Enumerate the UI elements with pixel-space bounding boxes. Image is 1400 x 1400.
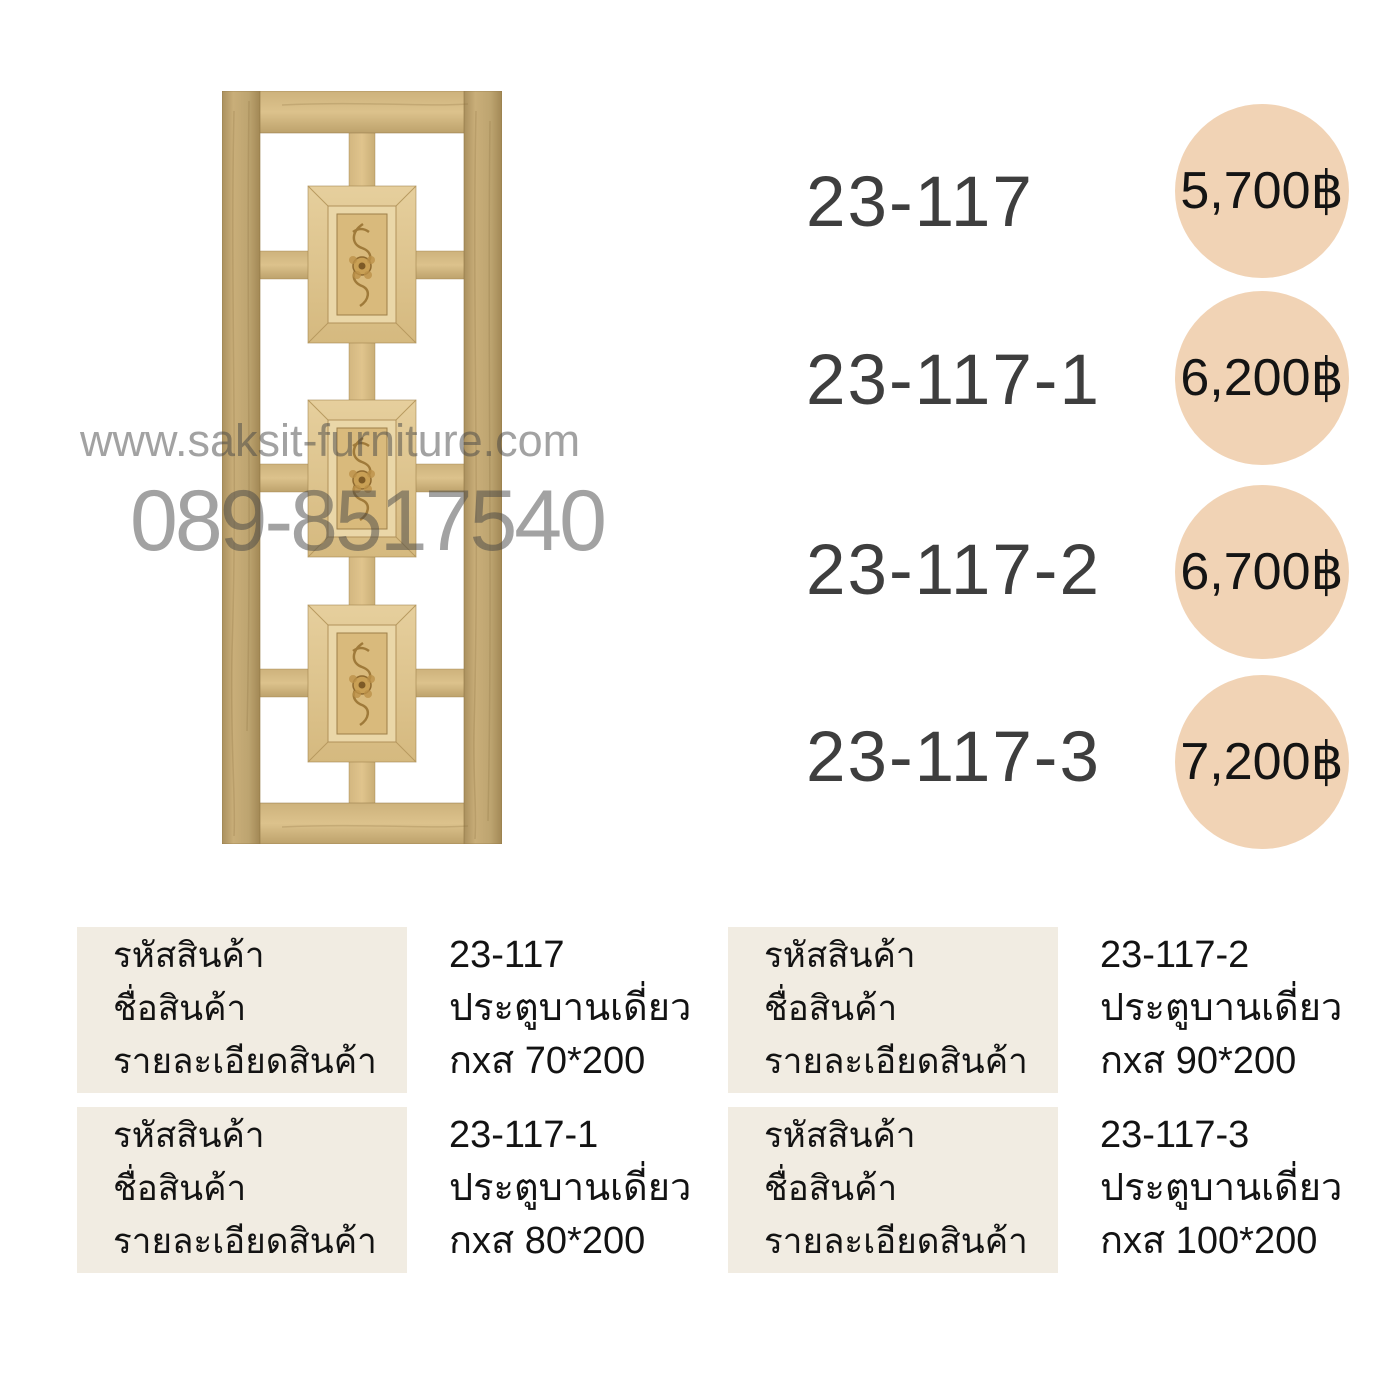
- spec-label-name: ชื่อสินค้า: [764, 982, 1028, 1035]
- spec-values: 23-117-2 ประตูบานเดี่ยว กxส 90*200: [1100, 929, 1342, 1088]
- spec-value-code: 23-117: [449, 929, 691, 982]
- product-code-23-117-3: 23-117-3: [806, 723, 1101, 793]
- spec-values: 23-117-1 ประตูบานเดี่ยว กxส 80*200: [449, 1109, 691, 1268]
- price-text: 7,200฿: [1180, 732, 1343, 792]
- spec-label-name: ชื่อสินค้า: [764, 1162, 1028, 1215]
- product-code-23-117-1: 23-117-1: [806, 346, 1101, 416]
- spec-value-name: ประตูบานเดี่ยว: [449, 982, 691, 1035]
- spec-value-detail: กxส 80*200: [449, 1215, 691, 1268]
- spec-label-name: ชื่อสินค้า: [113, 982, 377, 1035]
- price-text: 5,700฿: [1180, 161, 1343, 221]
- spec-label-detail: รายละเอียดสินค้า: [113, 1035, 377, 1088]
- spec-value-code: 23-117-2: [1100, 929, 1342, 982]
- watermark-website: www.saksit-furniture.com: [80, 418, 580, 463]
- spec-label-detail: รายละเอียดสินค้า: [764, 1215, 1028, 1268]
- spec-label-detail: รายละเอียดสินค้า: [113, 1215, 377, 1268]
- spec-label-code: รหัสสินค้า: [764, 1109, 1028, 1162]
- spec-values: 23-117 ประตูบานเดี่ยว กxส 70*200: [449, 929, 691, 1088]
- spec-value-name: ประตูบานเดี่ยว: [449, 1162, 691, 1215]
- product-code-23-117: 23-117: [806, 168, 1034, 238]
- spec-value-detail: กxส 90*200: [1100, 1035, 1342, 1088]
- spec-value-code: 23-117-1: [449, 1109, 691, 1162]
- product-code-23-117-2: 23-117-2: [806, 536, 1101, 606]
- spec-label-code: รหัสสินค้า: [113, 1109, 377, 1162]
- spec-labels: รหัสสินค้า ชื่อสินค้า รายละเอียดสินค้า: [113, 1109, 377, 1268]
- price-badge: 7,200฿: [1175, 675, 1349, 849]
- spec-label-name: ชื่อสินค้า: [113, 1162, 377, 1215]
- spec-value-detail: กxส 100*200: [1100, 1215, 1342, 1268]
- price-text: 6,700฿: [1180, 542, 1343, 602]
- spec-labels: รหัสสินค้า ชื่อสินค้า รายละเอียดสินค้า: [764, 1109, 1028, 1268]
- spec-labels: รหัสสินค้า ชื่อสินค้า รายละเอียดสินค้า: [113, 929, 377, 1088]
- spec-labels: รหัสสินค้า ชื่อสินค้า รายละเอียดสินค้า: [764, 929, 1028, 1088]
- price-badge: 5,700฿: [1175, 104, 1349, 278]
- spec-block-23-117-1: รหัสสินค้า ชื่อสินค้า รายละเอียดสินค้า 2…: [77, 1107, 717, 1277]
- carved-lattice-door-image: [222, 91, 502, 844]
- price-badge: 6,700฿: [1175, 485, 1349, 659]
- spec-value-code: 23-117-3: [1100, 1109, 1342, 1162]
- price-badge: 6,200฿: [1175, 291, 1349, 465]
- spec-values: 23-117-3 ประตูบานเดี่ยว กxส 100*200: [1100, 1109, 1342, 1268]
- catalog-page: www.saksit-furniture.com 089-8517540 23-…: [0, 0, 1400, 1400]
- spec-label-code: รหัสสินค้า: [764, 929, 1028, 982]
- spec-block-23-117-3: รหัสสินค้า ชื่อสินค้า รายละเอียดสินค้า 2…: [728, 1107, 1368, 1277]
- spec-block-23-117-2: รหัสสินค้า ชื่อสินค้า รายละเอียดสินค้า 2…: [728, 927, 1368, 1097]
- spec-value-name: ประตูบานเดี่ยว: [1100, 1162, 1342, 1215]
- spec-label-detail: รายละเอียดสินค้า: [764, 1035, 1028, 1088]
- door-photo: [222, 91, 502, 844]
- spec-block-23-117: รหัสสินค้า ชื่อสินค้า รายละเอียดสินค้า 2…: [77, 927, 717, 1097]
- spec-label-code: รหัสสินค้า: [113, 929, 377, 982]
- price-text: 6,200฿: [1180, 348, 1343, 408]
- watermark-phone: 089-8517540: [130, 478, 604, 564]
- spec-value-detail: กxส 70*200: [449, 1035, 691, 1088]
- spec-value-name: ประตูบานเดี่ยว: [1100, 982, 1342, 1035]
